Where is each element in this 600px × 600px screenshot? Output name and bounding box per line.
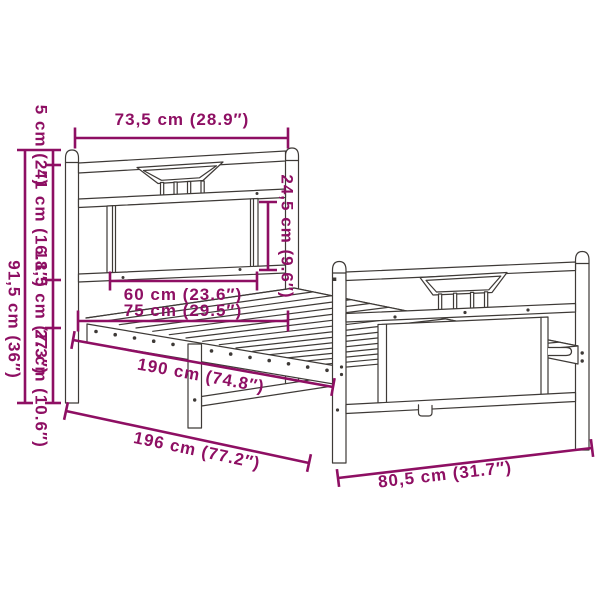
headboard-near-post [66,150,79,403]
dim-label-under-bed: 27 cm (10.6″) [32,319,51,459]
dim-label-top-width: 73,5 cm (28.9″) [75,110,289,129]
footboard-tab [419,405,433,416]
footboard-near-post [333,262,347,464]
headboard-panel [107,199,258,276]
footboard-panel [378,317,548,405]
dimension-diagram: 73,5 cm (28.9″) 91,5 cm (36″) 5 cm (2″) … [0,0,600,600]
dim-label-inner-width: 75 cm (29.5″) [83,301,283,320]
footboard-peg [548,348,572,356]
dim-label-total-height: 91,5 cm (36″) [5,240,24,400]
support-leg [188,344,202,428]
